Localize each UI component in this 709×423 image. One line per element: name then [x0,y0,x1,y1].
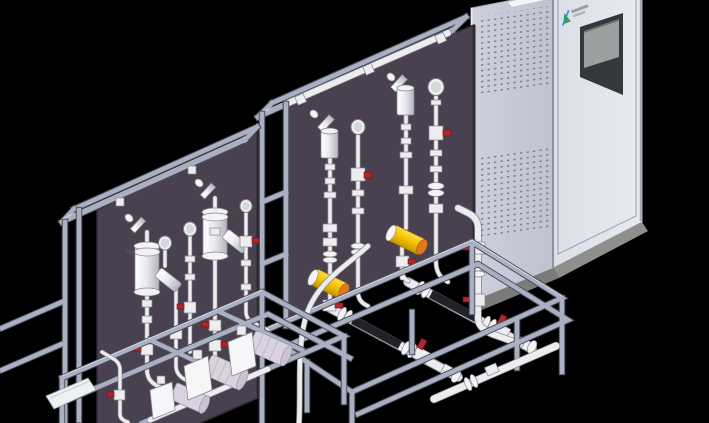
vent-grille-lower [477,147,550,240]
valve-body [351,168,365,181]
dampener-flange [321,128,338,134]
control-cabinet [471,0,648,312]
pipe-stub [188,166,196,174]
flange [323,257,337,263]
vent-grille-upper [477,6,550,97]
valve-body [396,256,409,267]
pressure-gauge [184,222,197,236]
valve-handle [364,172,372,178]
pump-port [237,326,246,335]
valve-body [240,236,252,247]
black-pipe-segment [353,320,400,345]
pump-port [157,376,165,384]
valve-handle [177,304,184,309]
valve-body [209,320,221,331]
valve-body [184,302,196,313]
render-viewport [0,0,709,423]
drip-tray [46,378,96,409]
dampener-flange [134,248,160,256]
valve-handle [107,392,114,397]
dampener-flange [397,85,414,91]
dampener-body [321,131,338,158]
cad-render [0,0,709,423]
valve-handle [443,130,451,136]
pressure-gauge [351,120,365,135]
pump-port [193,350,202,359]
pipe-tee [210,228,220,235]
dampener-flange [202,252,228,260]
valve-handle [335,303,343,308]
dampener-flange [202,213,228,221]
valve-body [429,126,443,140]
flange [323,251,337,257]
pressure-gauge [240,200,252,213]
flange [428,190,444,197]
pressure-gauge [428,79,444,96]
dampener-flange [134,288,160,296]
valve-handle [252,238,259,243]
flange [428,183,444,190]
valve-handle [202,322,209,327]
pipe-stub [116,198,124,206]
valve-body [114,390,125,400]
pressure-gauge [159,236,172,250]
dampener-body [397,88,414,115]
valve-handle [221,342,228,347]
valve-handle [417,338,427,350]
